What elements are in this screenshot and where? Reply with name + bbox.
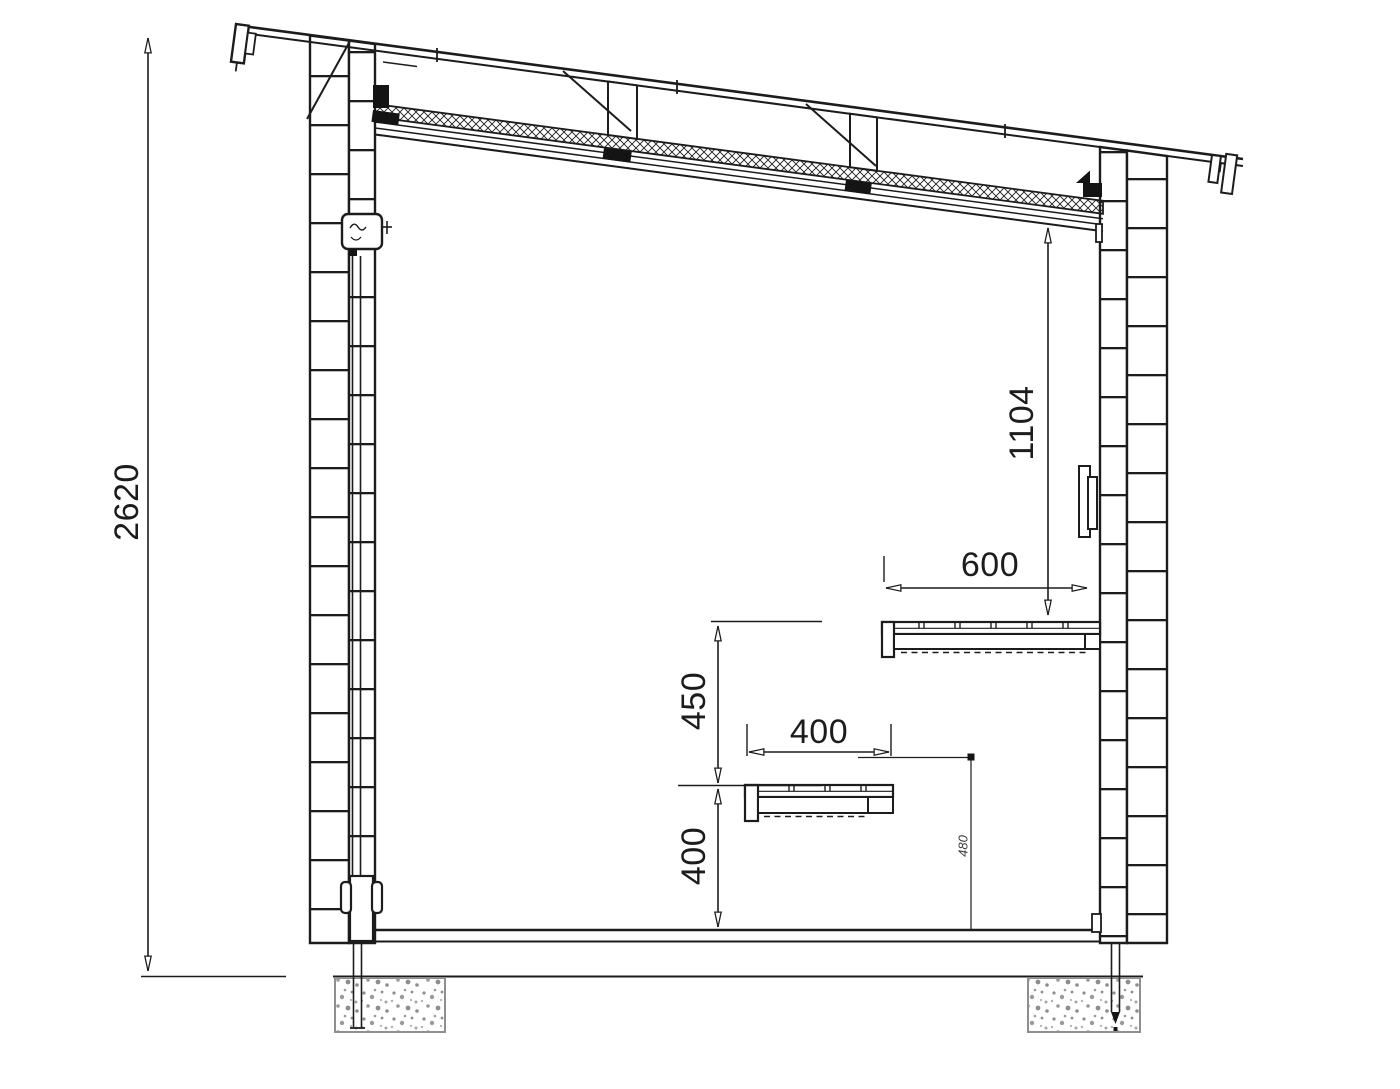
foundation-pad-right <box>1028 978 1140 1032</box>
foundation-pad-left <box>335 978 445 1032</box>
dim-wall-height-label: 2620 <box>110 463 144 541</box>
section-drawing <box>0 0 1400 1089</box>
fascia-right <box>1207 152 1237 194</box>
right-wall <box>1100 147 1167 943</box>
roof-insulation <box>375 104 1103 214</box>
dim-ceiling-to-bench-label: 1104 <box>1005 385 1039 460</box>
dimension-lines <box>141 38 1087 977</box>
floor <box>375 930 1100 942</box>
ceiling-end-tab <box>1096 224 1102 242</box>
dim-upper-bench-depth-label: 600 <box>961 548 1019 582</box>
roof-blocking <box>371 85 1102 197</box>
dim-bench-gap-label: 450 <box>677 672 711 730</box>
dim-wall-height-line <box>141 38 286 977</box>
ceiling-boards <box>375 122 1103 231</box>
left-wall <box>307 36 375 944</box>
dim-lower-bench-depth-label: 400 <box>790 715 848 749</box>
dim-rail-height-label: 480 <box>957 835 970 857</box>
lower-bench <box>745 785 893 821</box>
dim-bench-gap-line <box>711 622 822 784</box>
section-drawing-page: 2620 1104 600 450 400 400 480 <box>0 0 1400 1089</box>
backrest-boards <box>1079 466 1097 537</box>
fascia-left <box>230 24 257 73</box>
upper-bench <box>882 622 1100 657</box>
dim-lower-bench-height-label: 400 <box>677 827 711 885</box>
